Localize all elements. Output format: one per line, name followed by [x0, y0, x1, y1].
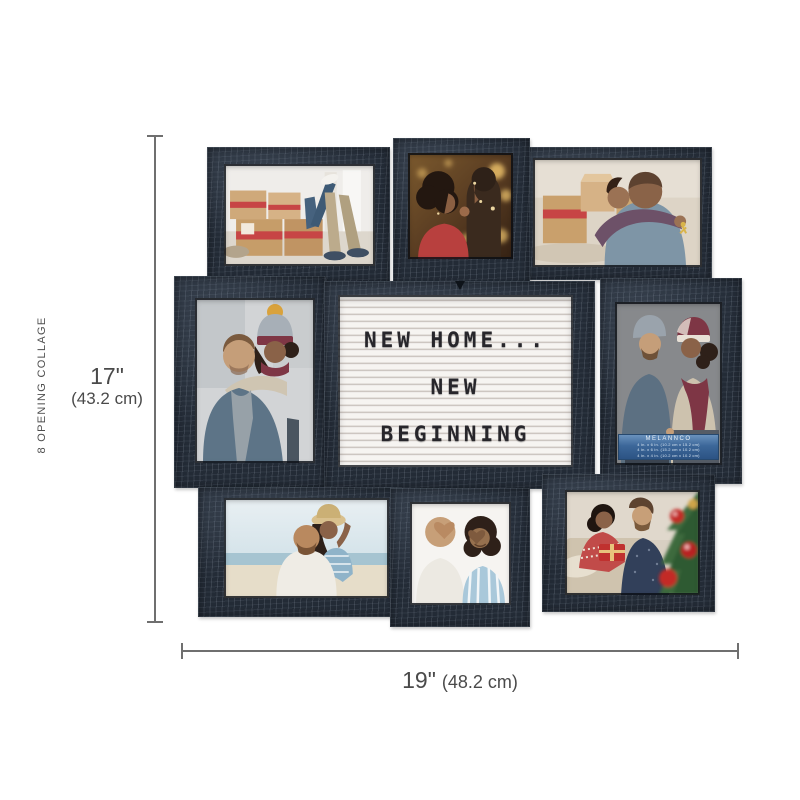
- photo-couple-hug-with-keys: [533, 158, 702, 267]
- letter-board-line: NEW: [431, 377, 481, 398]
- product-dimension-image: 8 OPENING COLLAGE 17" (43.2 cm) 19"(48.2…: [0, 0, 800, 800]
- letter-board-surface: NEW HOME... NEW BEGINNING: [338, 295, 573, 467]
- letter-board-line: BEGINNING: [381, 424, 531, 445]
- letter-board-line: NEW HOME...: [364, 330, 547, 351]
- photo-couple-back-to-back: MELANNCO 4 in. x 6 in. (10.2 cm x 15.2 c…: [615, 302, 722, 465]
- size-insert-label: MELANNCO 4 in. x 6 in. (10.2 cm x 15.2 c…: [618, 434, 719, 460]
- letter-board-frame: NEW HOME... NEW BEGINNING: [324, 281, 595, 489]
- frame-top-left: [207, 147, 390, 283]
- height-imperial: 17": [60, 363, 154, 389]
- photo-illustration: [224, 498, 389, 598]
- height-dimension-line: [154, 136, 156, 623]
- photo-couple-heart-hands: [410, 502, 511, 605]
- frame-bottom-left: [198, 487, 402, 617]
- height-dimension-tick-top: [147, 135, 163, 137]
- width-dimension-tick-left: [181, 643, 183, 659]
- frame-bottom-right: [542, 474, 715, 612]
- width-dimension-line: [182, 650, 739, 652]
- width-dimension-label: 19"(48.2 cm): [330, 667, 590, 694]
- frame-top-center: [393, 138, 530, 285]
- photo-illustration: [195, 298, 315, 463]
- height-metric: (43.2 cm): [60, 389, 154, 409]
- height-dimension-tick-bottom: [147, 621, 163, 623]
- photo-illustration: [410, 502, 511, 605]
- photo-couple-christmas-bokeh: [408, 153, 513, 259]
- width-dimension-tick-right: [737, 643, 739, 659]
- insert-brand: MELANNCO: [645, 436, 691, 442]
- photo-couple-piggyback-beach: [224, 498, 389, 598]
- photo-couple-piggyback-winter: [195, 298, 315, 463]
- hanger-notch: [455, 281, 465, 290]
- photo-illustration: [224, 164, 375, 266]
- frame-top-right: [519, 147, 712, 280]
- width-metric: (48.2 cm): [442, 672, 518, 692]
- photo-couple-moving-day-boxes: [224, 164, 375, 266]
- width-imperial: 19": [402, 667, 436, 693]
- insert-size-line: 4 in. x 4 in. (10.2 cm x 10.2 cm): [637, 454, 699, 459]
- frame-middle-right: MELANNCO 4 in. x 6 in. (10.2 cm x 15.2 c…: [600, 278, 742, 484]
- height-dimension-label: 17" (43.2 cm): [60, 363, 154, 409]
- side-label-vertical: 8 OPENING COLLAGE: [36, 316, 48, 453]
- photo-illustration: [565, 490, 700, 595]
- photo-couple-christmas-gifts: [565, 490, 700, 595]
- frame-middle-left: [174, 276, 326, 488]
- photo-illustration: [533, 158, 702, 267]
- photo-illustration: [408, 153, 513, 259]
- frame-bottom-center: [390, 488, 530, 627]
